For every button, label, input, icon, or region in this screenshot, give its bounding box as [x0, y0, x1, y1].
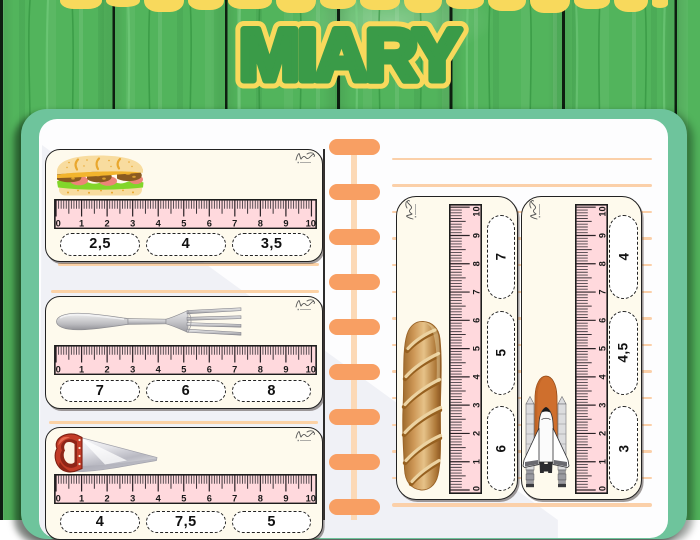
svg-text:2: 2 [104, 493, 109, 503]
svg-text:8: 8 [257, 219, 262, 229]
svg-text:8: 8 [257, 493, 262, 503]
svg-text:10: 10 [305, 219, 315, 229]
svg-text:0: 0 [472, 486, 482, 491]
svg-text:3: 3 [130, 493, 135, 503]
svg-text:10: 10 [472, 206, 482, 216]
svg-text:7: 7 [597, 289, 607, 294]
svg-text:7: 7 [232, 493, 237, 503]
svg-text:1: 1 [79, 365, 84, 375]
svg-text:5: 5 [597, 346, 607, 351]
svg-text:2: 2 [597, 431, 607, 436]
svg-text:2: 2 [472, 431, 482, 436]
svg-text:5: 5 [181, 493, 186, 503]
svg-text:6: 6 [472, 317, 482, 322]
svg-text:9: 9 [597, 233, 607, 238]
svg-text:0: 0 [55, 365, 60, 375]
svg-text:0: 0 [55, 219, 60, 229]
svg-text:4: 4 [597, 373, 607, 379]
svg-text:3: 3 [472, 402, 482, 407]
svg-text:8: 8 [472, 261, 482, 266]
svg-text:10: 10 [597, 206, 607, 216]
svg-text:9: 9 [283, 365, 288, 375]
svg-text:5: 5 [181, 219, 186, 229]
svg-text:9: 9 [472, 233, 482, 238]
svg-text:1: 1 [597, 459, 607, 464]
svg-text:3: 3 [130, 219, 135, 229]
svg-text:9: 9 [283, 493, 288, 503]
svg-text:5: 5 [472, 346, 482, 351]
svg-text:3: 3 [597, 402, 607, 407]
svg-text:4: 4 [472, 373, 482, 379]
svg-text:4: 4 [155, 365, 161, 375]
svg-text:6: 6 [206, 365, 211, 375]
svg-text:1: 1 [79, 493, 84, 503]
svg-text:7: 7 [232, 365, 237, 375]
svg-text:5: 5 [181, 365, 186, 375]
svg-text:0: 0 [55, 493, 60, 503]
svg-text:6: 6 [206, 493, 211, 503]
svg-text:7: 7 [232, 219, 237, 229]
svg-text:10: 10 [305, 365, 315, 375]
svg-text:7: 7 [472, 289, 482, 294]
svg-text:MIARY: MIARY [239, 15, 461, 96]
svg-text:1: 1 [79, 219, 84, 229]
svg-text:10: 10 [305, 493, 315, 503]
svg-text:1: 1 [472, 459, 482, 464]
svg-text:0: 0 [597, 486, 607, 491]
svg-text:2: 2 [104, 365, 109, 375]
svg-text:6: 6 [597, 317, 607, 322]
svg-text:2: 2 [104, 219, 109, 229]
svg-text:8: 8 [257, 365, 262, 375]
svg-text:6: 6 [206, 219, 211, 229]
svg-text:3: 3 [130, 365, 135, 375]
svg-text:8: 8 [597, 261, 607, 266]
svg-text:9: 9 [283, 219, 288, 229]
svg-text:4: 4 [155, 219, 161, 229]
svg-text:4: 4 [155, 493, 161, 503]
